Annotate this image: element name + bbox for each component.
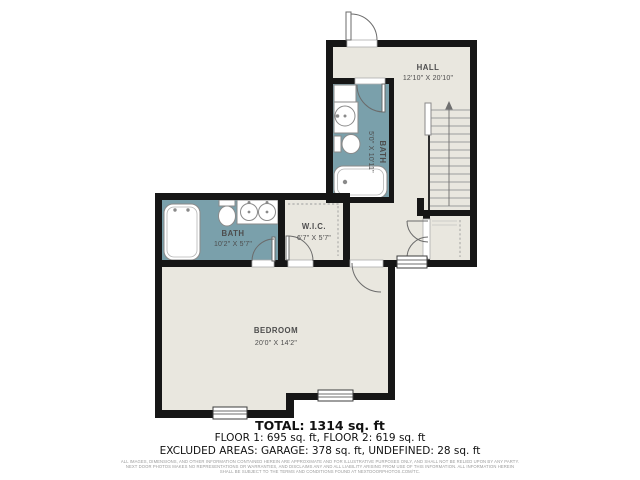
bedroom-window-left (213, 407, 247, 419)
toilet-bowl-icon (219, 206, 236, 226)
hall-label: HALL (417, 63, 440, 72)
floor-plan-page: HALL 12'10" X 20'10" BATH 5'0" X 10'11" … (0, 0, 640, 480)
entry-door (346, 12, 377, 47)
toilet-tank-icon (219, 200, 235, 206)
sink-tap-icon (336, 114, 340, 118)
sink-drain-icon (248, 211, 251, 214)
upper-bath-label: BATH (378, 140, 387, 163)
toilet-tank-icon (334, 136, 341, 152)
total-area-text: TOTAL: 1314 sq. ft (0, 419, 640, 432)
lower-bath-dims: 10'2" X 5'7" (214, 241, 252, 248)
toilet-bowl-icon (342, 135, 360, 154)
hall-dims: 12'10" X 20'10" (403, 75, 454, 82)
stair-newel-post (425, 103, 431, 135)
sink-tap-icon (266, 201, 269, 204)
disclaimer-text: ALL IMAGES, DIMENSIONS, AND OTHER INFORM… (0, 460, 640, 475)
disclaimer-line: SHALL BE SUBJECT TO THE TERMS AND CONDIT… (0, 470, 640, 475)
bedroom-label: BEDROOM (254, 326, 298, 335)
cabinet-icon (334, 85, 356, 102)
lower-bath-label: BATH (221, 229, 244, 238)
floor-areas-text: FLOOR 1: 695 sq. ft, FLOOR 2: 619 sq. ft (0, 432, 640, 445)
bedroom-floor (162, 267, 388, 410)
bedroom-dims: 20'0" X 14'2" (255, 340, 297, 347)
bathtub-icon (164, 204, 200, 260)
sink-tap-icon (248, 201, 251, 204)
bathtub-tap-icon (173, 208, 176, 211)
wic-dims: 6'7" X 5'7" (297, 235, 331, 242)
bathtub-drain-icon (343, 180, 347, 184)
bathtub-tap-icon (186, 208, 189, 211)
upper-bath-dims: 5'0" X 10'11" (367, 131, 374, 173)
sink-drain-icon (266, 211, 269, 214)
wic-label: W.I.C. (302, 222, 326, 231)
area-summary: TOTAL: 1314 sq. ft FLOOR 1: 695 sq. ft, … (0, 419, 640, 475)
sink-drain-icon (344, 115, 347, 118)
bedroom-window-right (318, 390, 353, 401)
excluded-areas-text: EXCLUDED AREAS: GARAGE: 378 sq. ft, UNDE… (0, 445, 640, 458)
floor-plan-drawing: HALL 12'10" X 20'10" BATH 5'0" X 10'11" … (0, 0, 640, 480)
hall-window (397, 256, 427, 268)
